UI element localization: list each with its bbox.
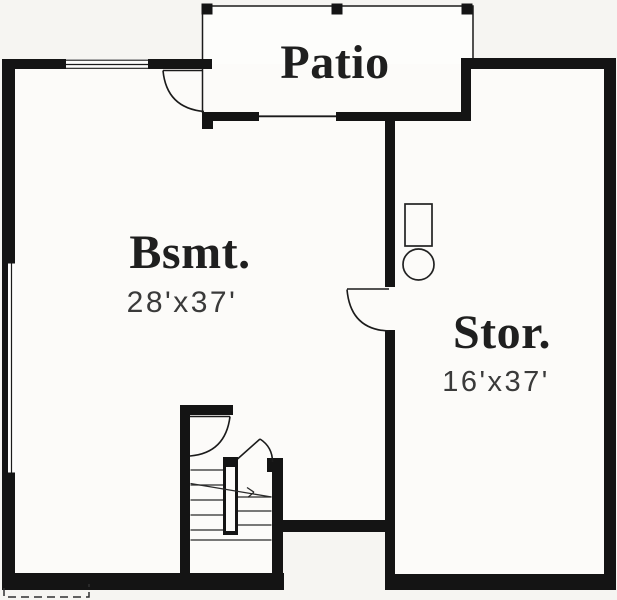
divider-wall-lower <box>385 330 395 590</box>
bottom-wall-right <box>386 574 616 590</box>
storage-label: Stor. <box>453 306 551 359</box>
stair-top-wall <box>180 405 233 415</box>
storage-dimensions: 16'x37' <box>442 366 550 398</box>
stringer-inner <box>226 467 235 531</box>
stair-stringer <box>223 457 238 535</box>
left-window-cap <box>8 261 15 264</box>
floor-plan-drawing: Patio Bsmt. 28'x37' Stor. 16'x37' <box>0 0 617 600</box>
left-window-cap <box>8 473 15 476</box>
patio-post <box>202 4 213 15</box>
stair-storage-link-wall <box>272 520 395 532</box>
patio-label: Patio <box>280 36 389 89</box>
patio-post <box>332 4 343 15</box>
divider-wall-upper <box>385 112 395 287</box>
left-window <box>8 261 15 475</box>
patio-back-wall-b <box>336 112 470 121</box>
room-fills <box>10 6 610 584</box>
basement-dimensions: 28'x37' <box>127 286 238 319</box>
interior-floor-upper <box>10 64 610 522</box>
right-exterior-wall <box>604 58 616 590</box>
top-window <box>66 59 148 69</box>
patio-post <box>462 4 473 15</box>
stair-left-wall <box>180 405 190 590</box>
patio-back-wall-endcap <box>202 112 213 129</box>
bottom-wall-left <box>2 573 284 590</box>
floor-plan: Patio Bsmt. 28'x37' Stor. 16'x37' <box>0 0 617 600</box>
top-wall-right <box>461 58 616 69</box>
basement-label: Bsmt. <box>129 226 250 279</box>
